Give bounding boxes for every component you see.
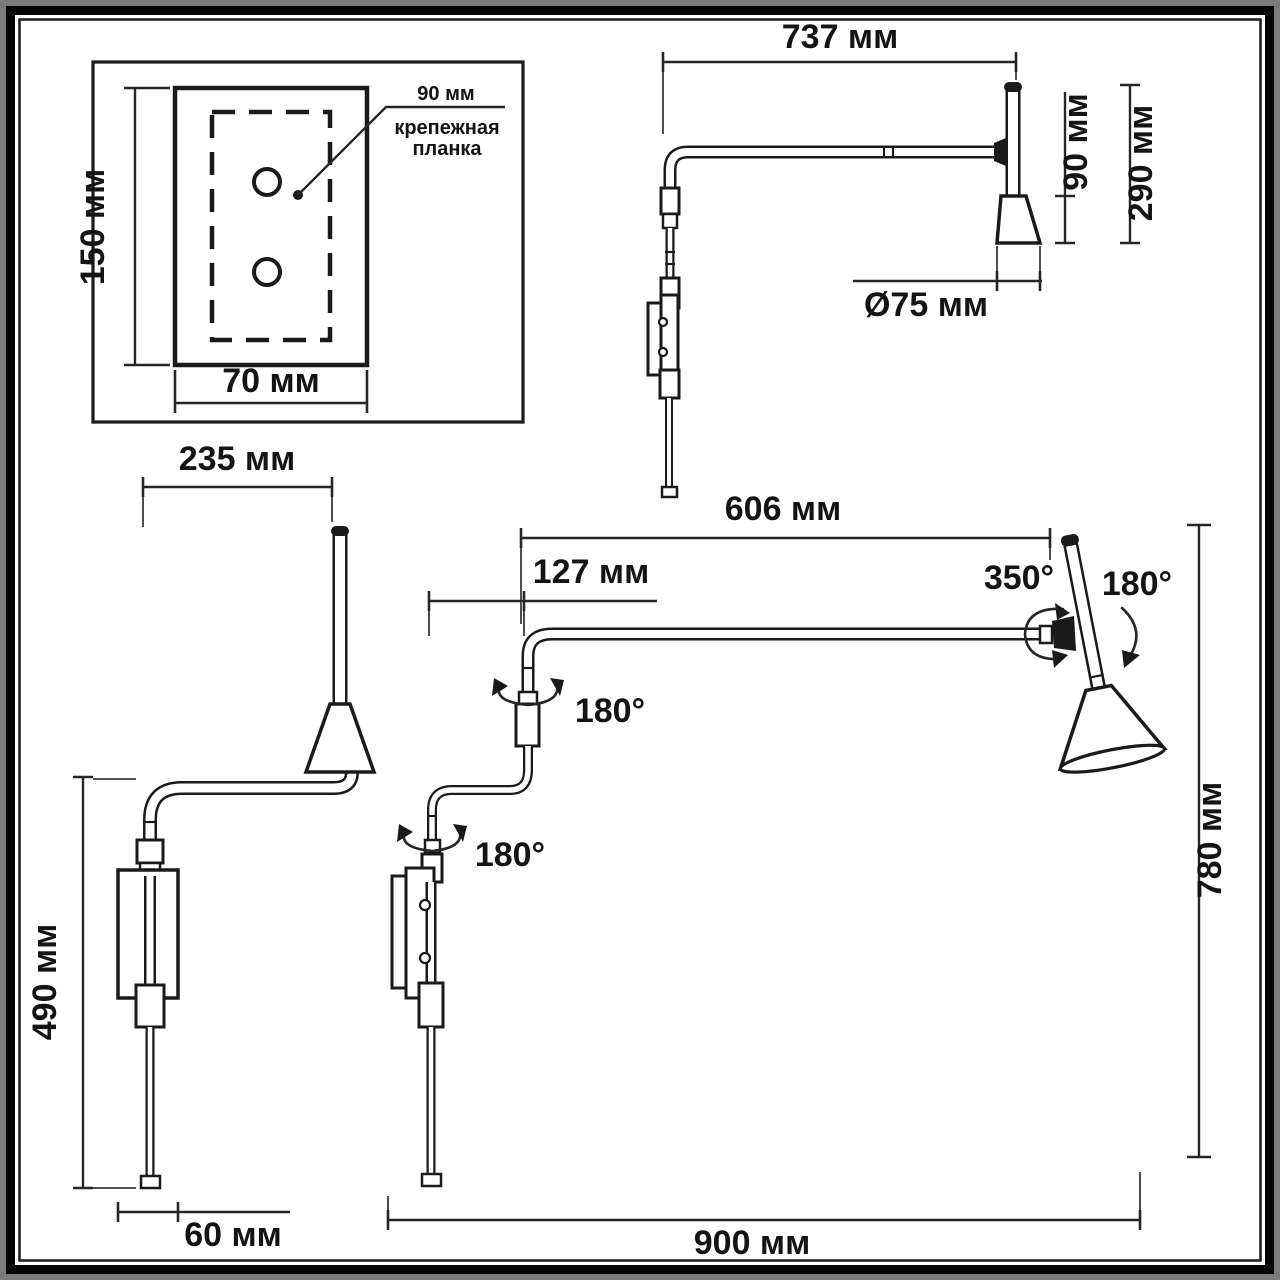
mount-screw	[420, 953, 430, 963]
technical-drawing-page: 90 мм крепежная планка 150 мм 70 мм 737 …	[0, 0, 1280, 1280]
shade-diameter-label: Ø75 мм	[864, 286, 988, 324]
lower-block	[419, 983, 443, 1027]
plate-width-label: 70 мм	[222, 362, 320, 400]
arm-length-label: 606 мм	[725, 490, 841, 528]
rod-foot	[662, 487, 677, 497]
rod-foot	[422, 1174, 441, 1186]
mount-screw	[659, 318, 667, 326]
arm-offset-label: 127 мм	[533, 553, 649, 591]
head-tilt-label: 180°	[1102, 565, 1172, 603]
joint-block	[516, 704, 539, 746]
shade-height-label: 90 мм	[1057, 93, 1095, 191]
total-height-label: 780 мм	[1191, 782, 1229, 898]
joint-collar	[519, 692, 537, 704]
screw-hole-top	[254, 169, 280, 195]
stem-cap	[1004, 82, 1022, 92]
total-reach-label: 900 мм	[694, 1224, 810, 1262]
bracket-name-line2: планка	[412, 138, 482, 160]
joint-block	[661, 188, 679, 214]
mount-screw	[659, 348, 667, 356]
lower-block	[660, 370, 679, 398]
pivot-cylinder	[1040, 626, 1052, 643]
drawing-canvas: 90 мм крепежная планка 150 мм 70 мм 737 …	[0, 0, 1280, 1280]
head-height-label: 290 мм	[1122, 105, 1160, 221]
screw-hole-bottom	[254, 259, 280, 285]
bracket-name-line1: крепежная	[394, 117, 499, 139]
joint-block	[137, 840, 163, 863]
mount-screw	[420, 900, 430, 910]
stem-cap	[331, 526, 349, 536]
plate-height-label: 150 мм	[74, 169, 112, 285]
arm-reach-label: 235 мм	[179, 440, 295, 478]
lower-joint-rotation-label: 180°	[475, 836, 545, 874]
plate-width-label: 60 мм	[184, 1216, 282, 1254]
joint-collar	[663, 214, 677, 228]
dim-head-height-290: 290 мм	[1120, 85, 1160, 243]
arm-length-label: 737 мм	[782, 18, 898, 56]
backplate-outline	[175, 88, 367, 365]
mounting-plate-view: 90 мм крепежная планка 150 мм 70 мм	[74, 62, 523, 422]
upper-joint-rotation-label: 180°	[575, 692, 645, 730]
pivot-hub	[1052, 616, 1076, 651]
column-height-label: 490 мм	[26, 924, 64, 1040]
lower-block	[136, 985, 164, 1027]
bracket-width-label: 90 мм	[417, 83, 474, 105]
head-rotation-label: 350°	[984, 559, 1054, 597]
rod-foot	[141, 1176, 160, 1188]
